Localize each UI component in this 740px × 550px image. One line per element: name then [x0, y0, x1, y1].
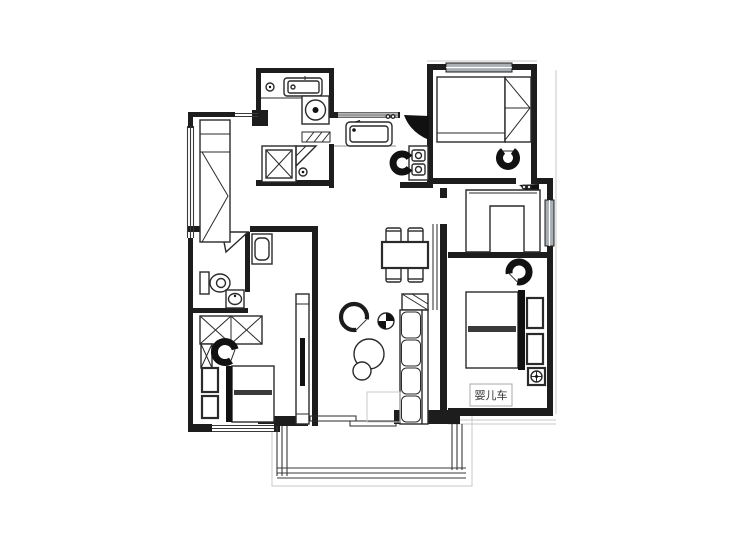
- basin-icon: [226, 290, 244, 308]
- tv-console-icon: [296, 294, 309, 424]
- pinwheel-decor-icon: [378, 313, 394, 329]
- window-bedroom-left-bottom: [212, 424, 274, 432]
- window-left-wall: [188, 126, 194, 238]
- washing-machine-icon: [302, 96, 329, 124]
- nightstand-icon: [202, 368, 218, 392]
- dressing-table-icon: [252, 234, 272, 264]
- window-bedroom-top: [446, 63, 512, 72]
- headboard: [226, 366, 232, 422]
- wardrobe-tall-icon: [200, 120, 230, 242]
- dining-area: [382, 228, 428, 282]
- bed-icon: [437, 77, 505, 142]
- utility-room: [261, 76, 330, 142]
- chair-icon: [500, 151, 517, 166]
- bed-fold-line: [234, 390, 272, 395]
- balcony-glazing: [277, 424, 466, 478]
- kitchen: [334, 122, 428, 180]
- sofa-icon: [400, 310, 428, 424]
- laundry-sink-icon: [284, 76, 322, 96]
- window-right-wall: [545, 200, 554, 246]
- nightstand-icon: [527, 298, 543, 328]
- coffee-table-small-icon: [353, 362, 371, 380]
- chair-icon: [509, 262, 529, 282]
- shower-stall-icon: [262, 146, 296, 182]
- nightstand-icon: [202, 396, 218, 418]
- kitchen-sink-icon: [346, 122, 392, 146]
- corner-shelf-icon: [296, 146, 316, 166]
- dining-table-icon: [382, 242, 428, 268]
- bedroom-master: 婴儿车: [466, 262, 545, 406]
- shower-room: [262, 146, 316, 182]
- bathroom-left: [200, 234, 272, 308]
- door-hinge-icon: [522, 185, 526, 189]
- headboard: [518, 290, 525, 370]
- door-hinge-icon: [527, 185, 531, 189]
- door-hinge-icon: [386, 115, 390, 119]
- hatched-threshold: [302, 132, 330, 142]
- plant-box-icon: [402, 294, 428, 310]
- stroller-label-text: 婴儿车: [475, 388, 508, 402]
- study-room: [466, 190, 540, 252]
- armchair-icon: [341, 304, 367, 330]
- floor-plan-canvas: 婴儿车: [0, 0, 740, 550]
- bed-fold-line: [468, 326, 516, 332]
- stroller-label: 婴儿车: [470, 384, 512, 406]
- u-cabinet-icon: [466, 190, 540, 252]
- bedroom-top-right: [437, 77, 531, 166]
- wok-pot-icon: [393, 154, 409, 172]
- sliding-door: [310, 416, 396, 426]
- closet-panel-icon: [505, 77, 531, 142]
- dining-screen-wall: [433, 224, 437, 310]
- door-hinge-icon: [391, 115, 395, 119]
- stove-icon: [409, 146, 428, 180]
- wardrobe-small-icon: [201, 344, 212, 368]
- chair-icon: [214, 342, 235, 363]
- lamp-outlet-icon: [528, 368, 545, 385]
- nightstand-icon: [527, 334, 543, 364]
- floor-plan-drawing: 婴儿车: [0, 0, 740, 550]
